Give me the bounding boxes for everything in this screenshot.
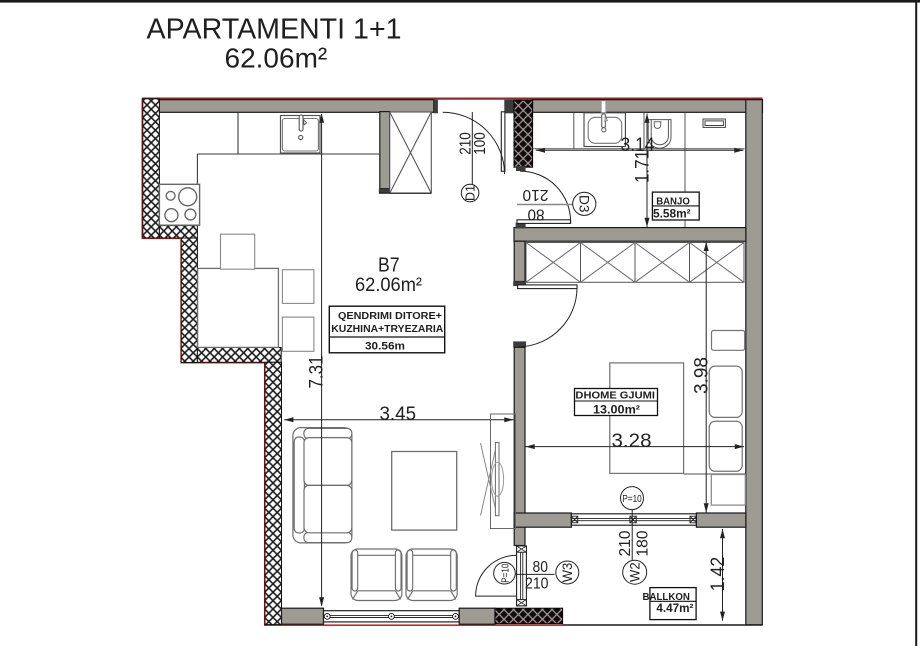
svg-text:210: 210 <box>458 132 475 155</box>
svg-text:80: 80 <box>533 559 549 576</box>
svg-text:180: 180 <box>635 530 652 556</box>
svg-text:1.42: 1.42 <box>707 557 729 592</box>
svg-text:1.71: 1.71 <box>631 150 653 183</box>
svg-text:4.47m²: 4.47m² <box>656 601 693 615</box>
svg-text:QENDRIMI DITORE+: QENDRIMI DITORE+ <box>338 310 442 322</box>
svg-text:KUZHINA+TRYEZARIA: KUZHINA+TRYEZARIA <box>331 323 443 335</box>
svg-text:5.58m²: 5.58m² <box>653 207 691 221</box>
svg-text:B7: B7 <box>378 255 400 277</box>
svg-text:62.06m²: 62.06m² <box>355 275 422 296</box>
svg-text:P=10: P=10 <box>622 493 642 505</box>
svg-text:BANJO: BANJO <box>656 195 690 207</box>
svg-text:62.06m²: 62.06m² <box>225 43 328 74</box>
svg-text:3.98: 3.98 <box>691 357 713 394</box>
svg-text:80: 80 <box>527 206 544 223</box>
svg-text:3.45: 3.45 <box>380 403 417 425</box>
svg-text:D1: D1 <box>463 185 478 201</box>
svg-text:210: 210 <box>617 530 634 556</box>
svg-text:P=10: P=10 <box>500 563 511 582</box>
svg-text:100: 100 <box>472 132 489 155</box>
svg-text:30.56m: 30.56m <box>365 341 405 353</box>
svg-text:W2: W2 <box>628 562 643 582</box>
svg-text:D3: D3 <box>577 195 592 213</box>
svg-text:7.31: 7.31 <box>305 356 327 389</box>
svg-text:210: 210 <box>525 576 549 593</box>
svg-text:3.28: 3.28 <box>612 430 652 452</box>
svg-text:APARTAMENTI 1+1: APARTAMENTI 1+1 <box>147 14 402 46</box>
svg-text:W3: W3 <box>560 563 575 583</box>
svg-text:210: 210 <box>522 186 548 203</box>
svg-text:13.00m²: 13.00m² <box>593 402 640 416</box>
svg-text:DHOME GJUMI: DHOME GJUMI <box>575 391 655 402</box>
